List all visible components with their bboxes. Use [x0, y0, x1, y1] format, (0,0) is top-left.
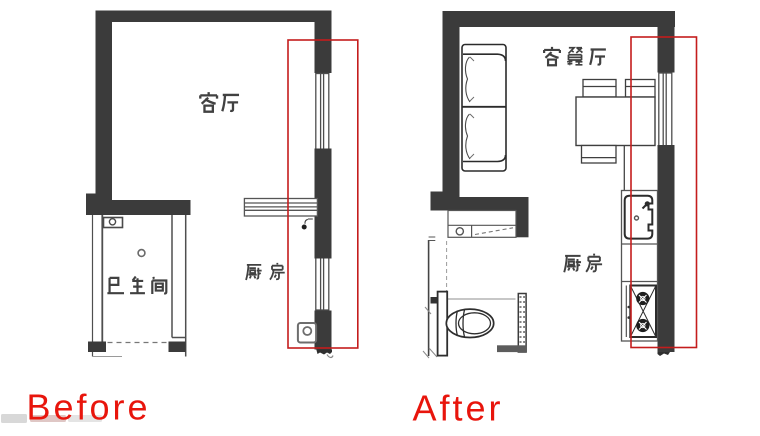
svg-text:After: After: [413, 388, 504, 429]
svg-text:Before: Before: [27, 387, 151, 428]
